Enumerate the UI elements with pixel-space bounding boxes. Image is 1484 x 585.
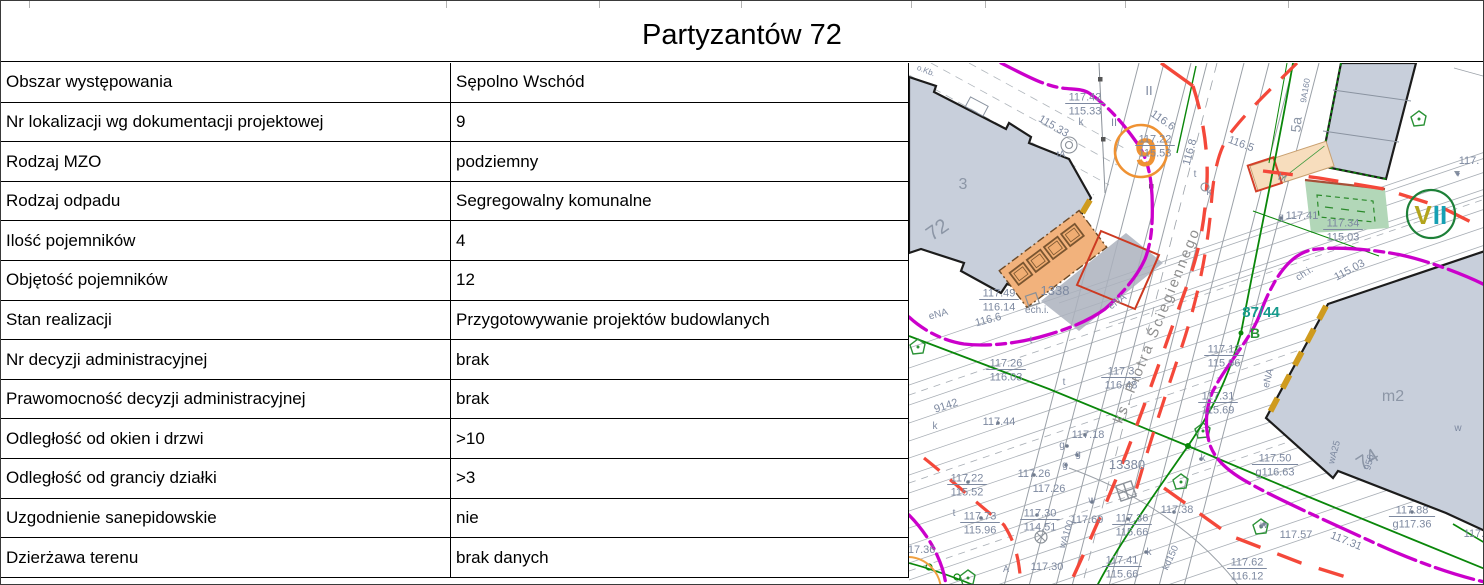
row-label: Uzgodnienie sanepidowskie <box>1 499 451 538</box>
svg-text:115.53: 115.53 <box>1139 148 1172 160</box>
table-row: Odległość od okien i drzwi>10 <box>1 419 909 459</box>
svg-text:117.: 117. <box>1459 155 1480 167</box>
svg-text:k: k <box>1147 547 1153 558</box>
map-label: k <box>1079 117 1085 128</box>
svg-text:w: w <box>1453 423 1462 434</box>
row-label: Obszar występowania <box>1 63 451 102</box>
map-elevation-label: 117.62116.12 <box>1227 557 1267 583</box>
map-label: 117. <box>1459 155 1480 167</box>
table-row: Prawomocność decyzji administracyjnejbra… <box>1 380 909 420</box>
svg-text:117.26: 117.26 <box>1033 483 1066 495</box>
map-label: 116.5 <box>1226 134 1255 154</box>
map-label: g <box>1278 212 1284 223</box>
map-elevation-label: 117.12115.96 <box>1204 344 1244 370</box>
svg-text:117.22: 117.22 <box>951 473 984 485</box>
map-elevation-label: 117.22115.52 <box>947 473 987 499</box>
map-label: 116.6 <box>1148 108 1177 133</box>
map-label: 117.30 <box>1031 561 1064 573</box>
map-label: II <box>1111 117 1117 129</box>
svg-text:117.36: 117.36 <box>1116 513 1149 525</box>
map-label: wA100 <box>1057 519 1077 551</box>
map-label: 117.26 <box>1018 468 1051 480</box>
map-label: w <box>1087 495 1096 506</box>
svg-text:117.12: 117.12 <box>1208 344 1241 356</box>
svg-text:k: k <box>933 421 939 432</box>
page-title: Partyzantów 72 <box>642 19 842 52</box>
row-value: 9 <box>451 103 909 142</box>
map-elevation-label: 117.26116.03 <box>986 358 1026 384</box>
map-elevation-label: 117.73115.96 <box>960 511 1000 537</box>
map-label: 1338 <box>1041 283 1070 298</box>
svg-text:117.30: 117.30 <box>1031 561 1064 573</box>
svg-text:▾: ▾ <box>1456 170 1460 179</box>
map-label: m2 <box>1382 388 1404 405</box>
map-label: 116.8 <box>1181 138 1200 167</box>
row-value: Segregowalny komunalne <box>451 182 909 221</box>
map-label: o.Kb. <box>916 63 937 78</box>
svg-text:117.5: 117.5 <box>1464 528 1484 540</box>
svg-text:115.96: 115.96 <box>964 525 997 537</box>
map-label: II <box>1433 200 1447 230</box>
map-elevation-label: 117.42115.33 <box>1065 92 1105 118</box>
svg-text:117.73: 117.73 <box>964 511 997 523</box>
data-sheet: Partyzantów 72 Obszar występowaniaSępoln… <box>0 0 1484 585</box>
svg-text:117.34: 117.34 <box>1327 218 1360 230</box>
column-divider-tick <box>1125 1 1126 8</box>
map-label: 117.44 <box>983 416 1016 428</box>
svg-text:117.49: 117.49 <box>983 288 1016 300</box>
svg-text:117.42: 117.42 <box>1069 92 1102 104</box>
svg-text:o.Kb.: o.Kb. <box>916 63 937 78</box>
map-label: 116.6 <box>974 311 1003 330</box>
table-row: Rodzaj MZOpodziemny <box>1 142 909 182</box>
map-label: eNA <box>928 307 950 323</box>
svg-text:t: t <box>1194 169 1197 180</box>
map-label: 117.31 <box>1329 530 1364 553</box>
table-row: Stan realizacjiPrzygotowywanie projektów… <box>1 301 909 341</box>
map-label: k <box>933 421 939 432</box>
row-label: Prawomocność decyzji administracyjnej <box>1 380 451 419</box>
map-label: B <box>1250 325 1260 341</box>
column-divider-tick <box>741 1 742 8</box>
row-label: Nr lokalizacji wg dokumentacji projektow… <box>1 103 451 142</box>
column-divider-tick <box>29 1 30 8</box>
map-label: 117.18 <box>1072 429 1105 441</box>
row-value: brak <box>451 340 909 379</box>
svg-text:117.31: 117.31 <box>1329 530 1364 553</box>
map-label: t <box>1030 335 1033 346</box>
column-divider-tick <box>985 1 986 8</box>
svg-text:II: II <box>1111 117 1117 129</box>
map-elevation-label: 117.30114.51 <box>1020 508 1060 534</box>
svg-text:115.33: 115.33 <box>1069 106 1102 118</box>
map-panel: o.Kb.IIII115.33ktA116.6116.8116.5tk37291… <box>909 63 1484 585</box>
map-label: k <box>1147 547 1153 558</box>
info-table: Obszar występowaniaSępolno WschódNr loka… <box>1 63 909 578</box>
svg-text:117.30: 117.30 <box>1024 508 1057 520</box>
map-label: 9142 <box>933 397 960 416</box>
map-label: ech.i. <box>1025 305 1049 316</box>
table-row: Objętość pojemników12 <box>1 261 909 301</box>
table-row: Odległość od granciy działki>3 <box>1 459 909 499</box>
svg-text:115.33: 115.33 <box>1036 113 1070 140</box>
svg-text:m2: m2 <box>1382 388 1404 405</box>
row-label: Odległość od okien i drzwi <box>1 419 451 458</box>
column-divider-tick <box>1288 1 1289 8</box>
svg-text:116.03: 116.03 <box>990 372 1023 384</box>
svg-text:t: t <box>953 508 956 519</box>
svg-text:g: g <box>1075 449 1081 460</box>
svg-text:115.52: 115.52 <box>951 487 984 499</box>
svg-text:117.22: 117.22 <box>1139 134 1172 146</box>
building-5a <box>1321 63 1416 179</box>
svg-text:kd150: kd150 <box>1160 544 1181 572</box>
column-divider-tick <box>446 1 447 8</box>
svg-text:115.03: 115.03 <box>1332 257 1367 283</box>
svg-text:115.66: 115.66 <box>1106 569 1139 581</box>
boundary-node <box>1185 443 1191 449</box>
svg-text:g116.63: g116.63 <box>1256 467 1295 479</box>
map-label: w <box>1259 520 1268 531</box>
svg-text:115.03: 115.03 <box>1327 232 1360 244</box>
svg-text:117.41: 117.41 <box>1106 555 1139 567</box>
table-row: Rodzaj odpaduSegregowalny komunalne <box>1 182 909 222</box>
row-value: brak danych <box>451 538 909 577</box>
map-label: g <box>1059 440 1065 451</box>
map-label: 117.26 <box>1033 483 1066 495</box>
row-label: Rodzaj MZO <box>1 142 451 181</box>
survey-map: o.Kb.IIII115.33ktA116.6116.8116.5tk37291… <box>909 63 1484 585</box>
row-value: brak <box>451 380 909 419</box>
map-label: kd150 <box>1160 544 1181 572</box>
table-row: Ilość pojemników4 <box>1 221 909 261</box>
map-label: eNA <box>1261 367 1277 389</box>
map-label: tA <box>1057 149 1066 159</box>
svg-text:114.51: 114.51 <box>1024 522 1057 534</box>
svg-text:5a: 5a <box>1287 116 1304 133</box>
map-label: ▾ <box>1456 170 1460 179</box>
svg-text:116.8: 116.8 <box>1181 138 1200 167</box>
svg-text:eNA: eNA <box>928 307 950 323</box>
map-elevation-label: 117.31115.69 <box>1198 391 1238 417</box>
svg-text:eNA: eNA <box>1261 367 1277 389</box>
svg-text:3: 3 <box>959 176 968 193</box>
row-value: nie <box>451 499 909 538</box>
svg-text:117.44: 117.44 <box>983 416 1016 428</box>
svg-text:116.5: 116.5 <box>1226 134 1255 154</box>
svg-text:II: II <box>1145 83 1152 98</box>
svg-text:tA: tA <box>1057 149 1066 159</box>
svg-text:w: w <box>1259 520 1268 531</box>
svg-text:k: k <box>1079 117 1085 128</box>
building-74 <box>1266 251 1484 531</box>
map-label: w <box>1453 423 1462 434</box>
map-label: 115.33 <box>1036 113 1070 140</box>
svg-text:117.31: 117.31 <box>1202 391 1235 403</box>
svg-text:t: t <box>1030 335 1033 346</box>
svg-text:117.38: 117.38 <box>1161 504 1194 516</box>
svg-text:9142: 9142 <box>933 397 960 416</box>
map-label: II <box>1145 83 1152 98</box>
row-label: Rodzaj odpadu <box>1 182 451 221</box>
svg-text:116.12: 116.12 <box>1231 571 1264 583</box>
svg-text:117.26: 117.26 <box>990 358 1023 370</box>
map-label: 3 <box>959 176 968 193</box>
svg-text:115.96: 115.96 <box>1208 358 1241 370</box>
map-label: g <box>1062 460 1068 471</box>
svg-text:87/44: 87/44 <box>1242 304 1280 321</box>
row-value: Sępolno Wschód <box>451 63 909 102</box>
map-label: 5a <box>1287 116 1304 133</box>
svg-text:117.88: 117.88 <box>1396 505 1429 517</box>
svg-text:116.6: 116.6 <box>1148 108 1177 133</box>
map-label: 115.03 <box>1332 257 1367 283</box>
svg-text:13380: 13380 <box>1109 457 1145 472</box>
map-label: 117.38 <box>1161 504 1194 516</box>
map-label: 87/44 <box>1242 304 1280 321</box>
svg-text:g: g <box>1062 460 1068 471</box>
svg-text:1338: 1338 <box>1041 283 1070 298</box>
row-value: 4 <box>451 221 909 260</box>
svg-text:117.62: 117.62 <box>1231 557 1264 569</box>
svg-text:117.18: 117.18 <box>1072 429 1105 441</box>
table-row: Obszar występowaniaSępolno Wschód <box>1 63 909 103</box>
svg-text:117.50: 117.50 <box>1259 453 1292 465</box>
svg-text:B: B <box>1250 325 1260 341</box>
svg-text:116.6: 116.6 <box>974 311 1003 330</box>
map-elevation-label: 117.88g117.36 <box>1389 505 1435 531</box>
map-label: t <box>953 508 956 519</box>
row-value: podziemny <box>451 142 909 181</box>
table-row: Nr lokalizacji wg dokumentacji projektow… <box>1 103 909 143</box>
row-label: Dzierżawa terenu <box>1 538 451 577</box>
svg-text:ch.i.: ch.i. <box>1294 264 1315 283</box>
map-label: 117.41 <box>1286 210 1319 222</box>
svg-text:g: g <box>1278 212 1284 223</box>
column-divider-tick <box>599 1 600 8</box>
svg-text:117.57: 117.57 <box>1280 529 1313 541</box>
table-row: Dzierżawa terenubrak danych <box>1 538 909 578</box>
map-label: 117.36 <box>909 544 935 556</box>
row-label: Ilość pojemników <box>1 221 451 260</box>
row-value: >10 <box>451 419 909 458</box>
column-divider-tick <box>911 1 912 8</box>
svg-text:w: w <box>1087 495 1096 506</box>
row-value: Przygotowywanie projektów budowlanych <box>451 301 909 340</box>
map-label: t <box>1194 169 1197 180</box>
svg-text:ech.i.: ech.i. <box>1025 305 1049 316</box>
svg-text:117.36: 117.36 <box>909 544 935 556</box>
map-label: ch.i. <box>1294 264 1315 283</box>
map-label: V <box>1414 200 1432 230</box>
svg-text:II: II <box>1433 200 1447 230</box>
svg-text:A: A <box>1003 564 1009 574</box>
row-label: Objętość pojemników <box>1 261 451 300</box>
svg-text:g: g <box>1059 440 1065 451</box>
svg-text:117.41: 117.41 <box>1286 210 1319 222</box>
row-label: Stan realizacji <box>1 301 451 340</box>
map-label: 13380 <box>1109 457 1145 472</box>
table-row: Nr decyzji administracyjnejbrak <box>1 340 909 380</box>
row-label: Nr decyzji administracyjnej <box>1 340 451 379</box>
svg-text:117.26: 117.26 <box>1018 468 1051 480</box>
boundary-node <box>1239 331 1244 336</box>
title-cell: Partyzantów 72 <box>1 9 1483 62</box>
svg-text:t: t <box>1063 377 1066 388</box>
map-elevation-label: 117.50g116.63 <box>1252 453 1298 479</box>
map-label: t <box>1063 377 1066 388</box>
map-label: 117.57 <box>1280 529 1313 541</box>
svg-text:wA100: wA100 <box>1057 519 1077 551</box>
row-label: Odległość od granciy działki <box>1 459 451 498</box>
table-row: Uzgodnienie sanepidowskienie <box>1 499 909 539</box>
map-elevation-label: 117.49116.14 <box>979 288 1019 314</box>
map-label: g <box>1075 449 1081 460</box>
row-value: 12 <box>451 261 909 300</box>
svg-text:115.66: 115.66 <box>1116 527 1149 539</box>
map-label: A <box>1003 564 1009 574</box>
map-elevation-label: 117.36115.66 <box>1112 513 1152 539</box>
svg-text:V: V <box>1414 200 1432 230</box>
svg-text:115.69: 115.69 <box>1202 405 1235 417</box>
svg-text:g117.36: g117.36 <box>1393 519 1432 531</box>
row-value: >3 <box>451 459 909 498</box>
map-label: 117.5 <box>1464 528 1484 540</box>
